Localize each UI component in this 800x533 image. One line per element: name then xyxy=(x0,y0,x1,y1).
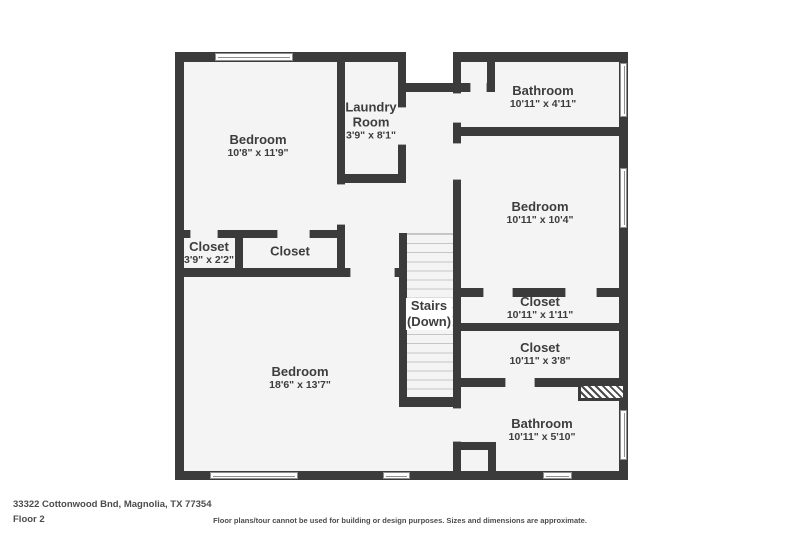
floor-plan: Bedroom 10'8" x 11'9" Laundry Room 3'9" … xyxy=(0,0,800,533)
room-dims: 10'8" x 11'9" xyxy=(227,147,288,160)
room-dims: 10'11" x 1'11" xyxy=(507,309,573,322)
wall xyxy=(399,397,461,407)
window xyxy=(383,472,410,479)
room-name: Bedroom xyxy=(227,132,288,147)
wall xyxy=(453,323,628,331)
door-opening xyxy=(350,268,395,277)
door-opening xyxy=(453,143,461,180)
chimney-hatch xyxy=(578,383,626,401)
wall xyxy=(337,174,406,183)
room-label-closet-small: Closet 3'9" x 2'2" xyxy=(184,239,234,267)
room-name: Bedroom xyxy=(269,364,331,379)
window xyxy=(543,472,572,479)
door-opening xyxy=(277,230,310,238)
window xyxy=(215,53,293,61)
floor-right-section xyxy=(461,61,620,471)
room-label-laundry: Laundry Room 3'9" x 8'1" xyxy=(339,100,403,143)
room-dims: 10'11" x 5'10" xyxy=(509,431,576,444)
window xyxy=(620,63,627,117)
room-name: Stairs xyxy=(406,298,452,314)
door-opening xyxy=(453,93,461,123)
room-label-closet-hall-2: Closet 10'11" x 3'8" xyxy=(509,340,570,368)
door-opening xyxy=(505,378,535,387)
room-label-bedroom-large: Bedroom 18'6" x 13'7" xyxy=(269,364,331,392)
room-dims: 10'11" x 10'4" xyxy=(507,214,574,227)
wall xyxy=(453,442,496,450)
room-dims: 3'9" x 8'1" xyxy=(339,130,403,143)
wall xyxy=(487,61,495,92)
room-label-bathroom-top: Bathroom 10'11" x 4'11" xyxy=(510,83,576,111)
room-dims: 10'11" x 3'8" xyxy=(509,355,570,368)
room-name: Closet xyxy=(507,294,573,309)
address-text: 33322 Cottonwood Bnd, Magnolia, TX 77354 xyxy=(13,499,211,510)
wall xyxy=(453,127,628,136)
room-name: Closet xyxy=(270,244,310,259)
door-opening xyxy=(470,83,487,92)
door-opening xyxy=(190,230,218,238)
room-name: Bathroom xyxy=(510,83,576,98)
window xyxy=(620,410,627,460)
room-name: Bedroom xyxy=(507,199,574,214)
room-label-bathroom-bottom: Bathroom 10'11" x 5'10" xyxy=(509,416,576,444)
room-dims: 3'9" x 2'2" xyxy=(184,254,234,267)
room-label-closet-hall-1: Closet 10'11" x 1'11" xyxy=(507,294,573,322)
door-opening xyxy=(453,408,461,442)
room-label-bedroom-top-left: Bedroom 10'8" x 11'9" xyxy=(227,132,288,160)
room-label-stairs: Stairs (Down) xyxy=(406,298,452,330)
wall xyxy=(399,83,470,92)
room-label-bedroom-right: Bedroom 10'11" x 10'4" xyxy=(507,199,574,227)
room-dims: 10'11" x 4'11" xyxy=(510,98,576,111)
wall xyxy=(337,52,345,277)
room-name: Closet xyxy=(509,340,570,355)
wall xyxy=(453,52,628,62)
disclaimer-text: Floor plans/tour cannot be used for buil… xyxy=(0,516,800,525)
room-name: Closet xyxy=(184,239,234,254)
room-name: Bathroom xyxy=(509,416,576,431)
window xyxy=(210,472,298,479)
wall xyxy=(175,52,184,480)
door-opening xyxy=(337,184,345,225)
room-label-closet-mid: Closet xyxy=(270,244,310,259)
room-dims: 18'6" x 13'7" xyxy=(269,379,331,392)
room-dims: (Down) xyxy=(406,314,452,330)
window xyxy=(620,168,627,228)
room-name: Laundry Room xyxy=(339,100,403,130)
